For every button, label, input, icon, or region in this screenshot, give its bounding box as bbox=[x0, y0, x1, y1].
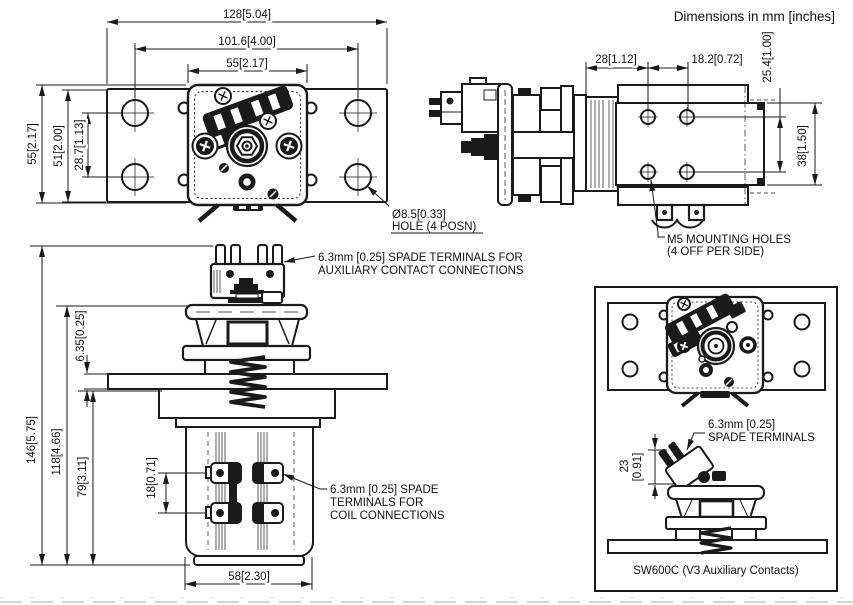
plan-view: 128[5.04] 101.6[4.00] 55[2.17] 55[2.17] … bbox=[27, 9, 483, 233]
front-view: 146[5.75] 118[4.66] 79[3.11] 6.35[0.25] … bbox=[26, 245, 524, 590]
dim-body-depth: 55[2.17] bbox=[27, 123, 39, 165]
inset-caption: SW600C (V3 Auxiliary Contacts) bbox=[633, 565, 799, 577]
aux-callout-line2: AUXILIARY CONTACT CONNECTIONS bbox=[318, 265, 524, 277]
inset-contact-bar bbox=[668, 486, 764, 499]
dim-hole-spacing-y-side: 25.4[1.00] bbox=[762, 31, 774, 82]
dim-body-width-front: 58[2.30] bbox=[228, 571, 270, 583]
dim-coil-terminal-spacing: 18[0.71] bbox=[146, 457, 158, 499]
dim-aux-height-in: [0.91] bbox=[632, 453, 644, 482]
dim-height-79: 79[3.11] bbox=[77, 457, 89, 498]
coil-callout-line2: TERMINALS FOR bbox=[330, 497, 423, 509]
coil-callout-line3: COIL CONNECTIONS bbox=[330, 510, 445, 522]
dim-aux-height-mm: 23 bbox=[619, 460, 631, 473]
dim-hole-spacing-x-side: 18.2[0.72] bbox=[691, 54, 742, 66]
coil-callout-line1: 6.3mm [0.25] SPADE bbox=[330, 484, 439, 496]
dim-height-118: 118[4.66] bbox=[51, 428, 63, 475]
drawing-title: Dimensions in mm [inches] bbox=[674, 9, 835, 24]
dim-flange-thickness: 6.35[0.25] bbox=[75, 310, 87, 361]
side-view: 28[1.12] 18.2[0.72] 25.4[1.00] 38[1.50] … bbox=[429, 31, 822, 258]
dim-bracket-depth: 51[2.00] bbox=[53, 125, 65, 167]
engineering-drawing: Dimensions in mm [inches] bbox=[0, 0, 853, 605]
dim-overall-height: 146[5.75] bbox=[26, 416, 38, 464]
inset-box: 6.3mm [0.25] SPADE TERMINALS 23 [0.91] S… bbox=[595, 287, 837, 591]
hole-callout-line1: Ø8.5[0.33] bbox=[392, 209, 446, 221]
m5-callout-line2: (4 OFF PER SIDE) bbox=[667, 246, 764, 258]
hole-callout-line2: HOLE (4 POSN) bbox=[392, 221, 477, 233]
dim-body-width: 55[2.17] bbox=[226, 58, 268, 70]
right-screw-plan bbox=[277, 134, 302, 159]
dim-hole-spacing-y: 28.7[1.13] bbox=[74, 119, 86, 170]
coil-body-front bbox=[186, 427, 313, 556]
contact-bar-side bbox=[513, 132, 574, 158]
main-stud-plan bbox=[227, 126, 267, 166]
dim-flange-to-hole: 28[1.12] bbox=[595, 54, 637, 66]
drawing-page: Dimensions in mm [inches] bbox=[0, 0, 853, 605]
left-screw-plan bbox=[193, 134, 218, 159]
inset-callout-line2: SPADE TERMINALS bbox=[708, 432, 815, 444]
inset-callout-line1: 6.3mm [0.25] bbox=[708, 419, 775, 431]
dim-overall-width: 128[5.04] bbox=[223, 9, 271, 21]
m5-callout-line1: M5 MOUNTING HOLES bbox=[667, 234, 791, 246]
aux-callout-line1: 6.3mm [0.25] SPADE TERMINALS FOR bbox=[318, 252, 523, 264]
dim-hole-spacing-x: 101.6[4.00] bbox=[218, 36, 276, 48]
aux-callout: 6.3mm [0.25] SPADE TERMINALS FOR AUXILIA… bbox=[284, 252, 524, 277]
dim-bracket-height-side: 38[1.50] bbox=[797, 125, 809, 167]
page-edge-artifact bbox=[0, 598, 853, 602]
